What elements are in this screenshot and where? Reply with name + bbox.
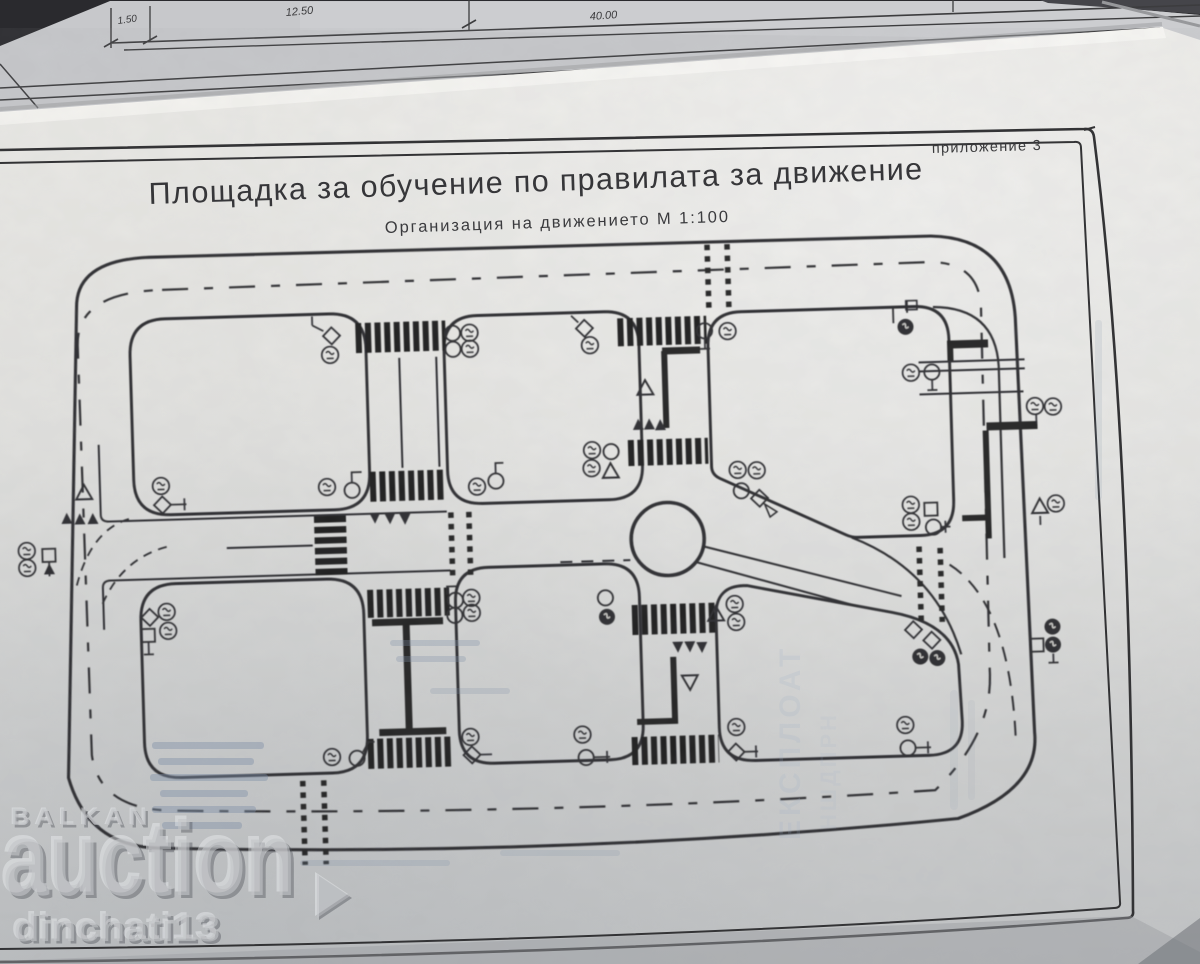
svg-text:ЕКСПЛОАТ: ЕКСПЛОАТ (774, 645, 807, 840)
svg-text:dinchati13: dinchati13 (14, 908, 220, 950)
svg-text:40.00: 40.00 (589, 9, 618, 23)
svg-text:12.50: 12.50 (285, 5, 314, 19)
svg-text:НШДПРН: НШДПРН (816, 712, 841, 830)
svg-text:auction: auction (3, 801, 296, 918)
